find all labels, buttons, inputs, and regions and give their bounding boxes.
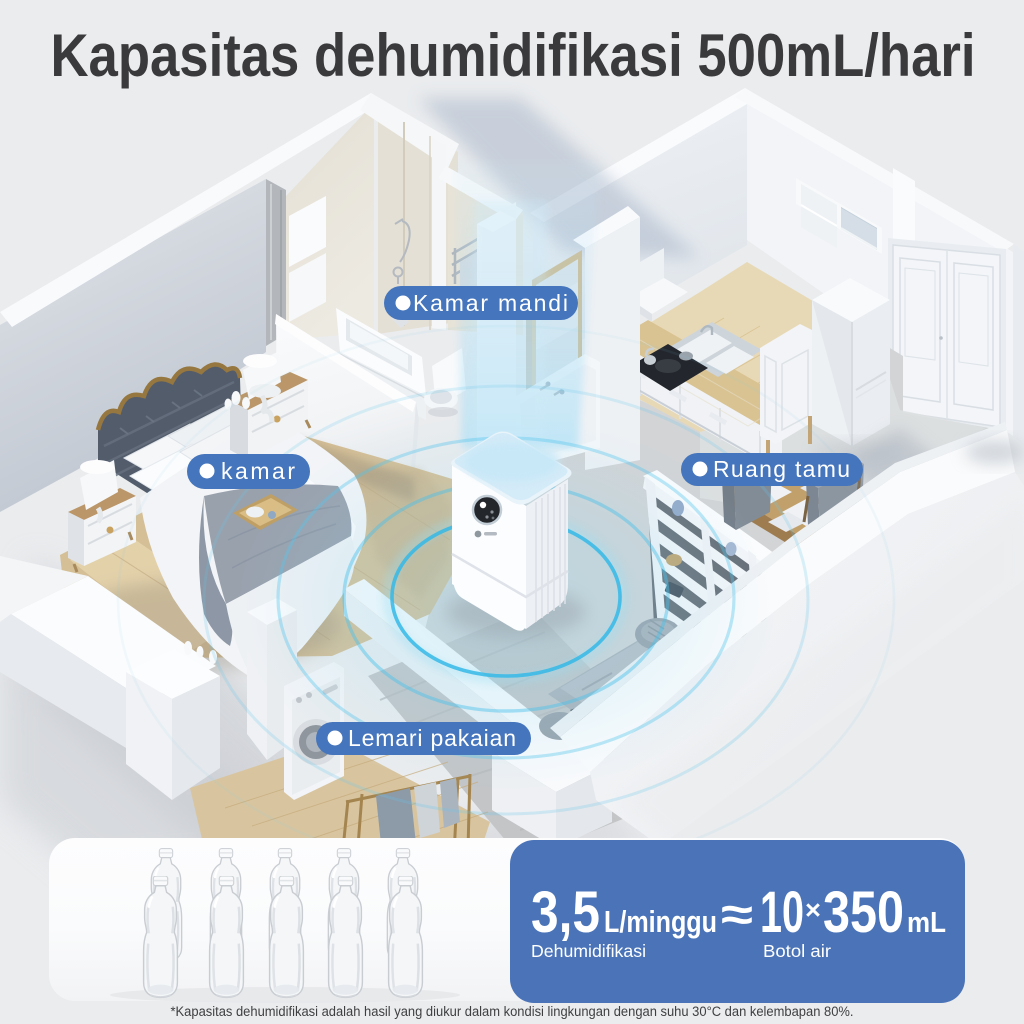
svg-text:×: × (805, 895, 821, 925)
svg-text:mL: mL (907, 907, 946, 939)
svg-text:*Kapasitas dehumidifikasi adal: *Kapasitas dehumidifikasi adalah hasil y… (171, 1004, 854, 1019)
svg-text:3,5: 3,5 (531, 880, 600, 945)
svg-text:≈: ≈ (721, 888, 753, 940)
svg-text:kamar: kamar (221, 458, 295, 484)
svg-text:350: 350 (823, 880, 904, 945)
svg-text:Dehumidifikasi: Dehumidifikasi (531, 941, 646, 961)
svg-text:Kamar mandi: Kamar mandi (413, 290, 568, 316)
svg-text:Ruang tamu: Ruang tamu (713, 456, 850, 482)
svg-text:Lemari pakaian: Lemari pakaian (348, 725, 516, 751)
svg-text:L/minggu: L/minggu (604, 904, 717, 939)
svg-text:10: 10 (760, 880, 804, 945)
svg-text:Kapasitas dehumidifikasi 500mL: Kapasitas dehumidifikasi 500mL/hari (51, 22, 976, 89)
svg-text:Botol air: Botol air (763, 941, 831, 961)
